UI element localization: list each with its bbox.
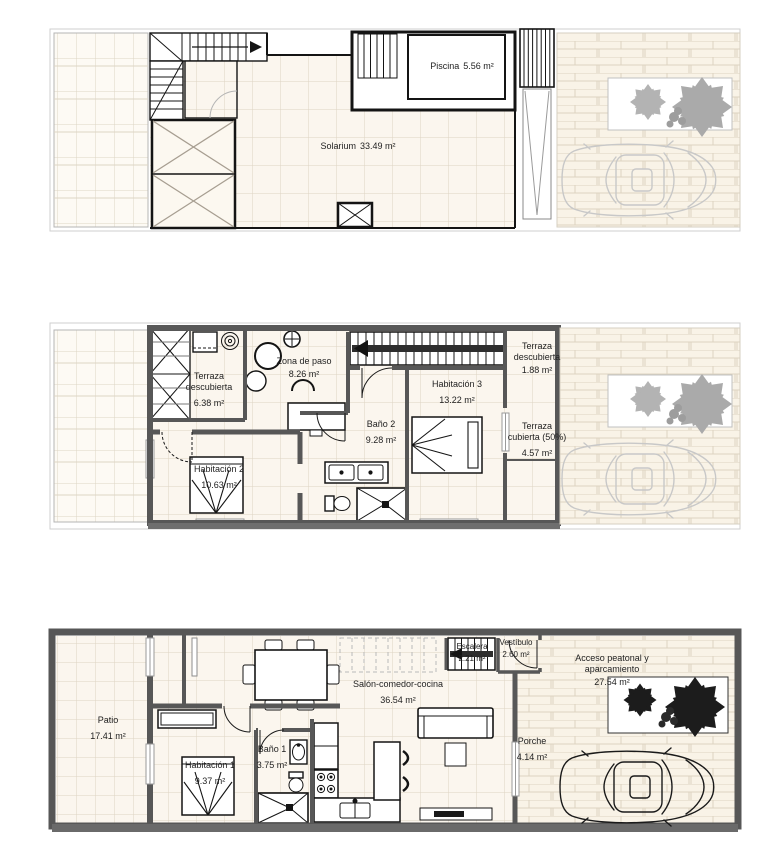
planter <box>608 76 733 138</box>
bathroom-sink-icon <box>290 740 307 764</box>
pergola <box>54 33 148 227</box>
floor-plan-ground-floor <box>0 624 782 849</box>
roof-void <box>152 120 235 228</box>
bed-icon <box>190 457 243 513</box>
planter <box>608 676 728 738</box>
bed-icon <box>182 757 234 815</box>
toilet-icon <box>325 496 350 511</box>
floor-plan-first-floor <box>0 318 782 542</box>
parking-area <box>560 328 740 524</box>
stairwell-icon <box>150 328 190 420</box>
tv-bench-icon <box>420 808 492 820</box>
pool <box>352 32 515 110</box>
planter <box>608 373 733 435</box>
wall-shadow <box>52 824 738 832</box>
pergola <box>54 330 148 522</box>
louver-roof <box>520 29 554 219</box>
sofa-icon <box>418 708 493 738</box>
coffee-table-icon <box>445 743 466 766</box>
stove-icon <box>314 770 338 798</box>
stairs-icon <box>350 332 505 365</box>
side-table-icon <box>284 331 300 347</box>
stairs-icon <box>448 638 495 670</box>
double-sink-icon <box>325 462 388 483</box>
wardrobe-icon <box>158 710 216 728</box>
patio-floor <box>56 636 148 826</box>
floor-plan-sheet: Piscina5.56 m² Solarium33.49 m² Terraza … <box>0 0 782 849</box>
floor-plan-solarium-level <box>0 25 782 240</box>
toilet-icon <box>289 772 303 792</box>
island-icon <box>374 742 400 800</box>
washing-machine-icon <box>193 332 217 352</box>
bed-icon <box>412 417 482 473</box>
parking-area <box>557 33 740 227</box>
dining-table-icon <box>243 640 339 710</box>
shower-icon <box>357 488 407 521</box>
wall-shadow <box>148 523 560 529</box>
shower-icon <box>258 793 308 823</box>
skylight-icon <box>338 203 372 227</box>
pool-steps-icon <box>358 34 397 78</box>
